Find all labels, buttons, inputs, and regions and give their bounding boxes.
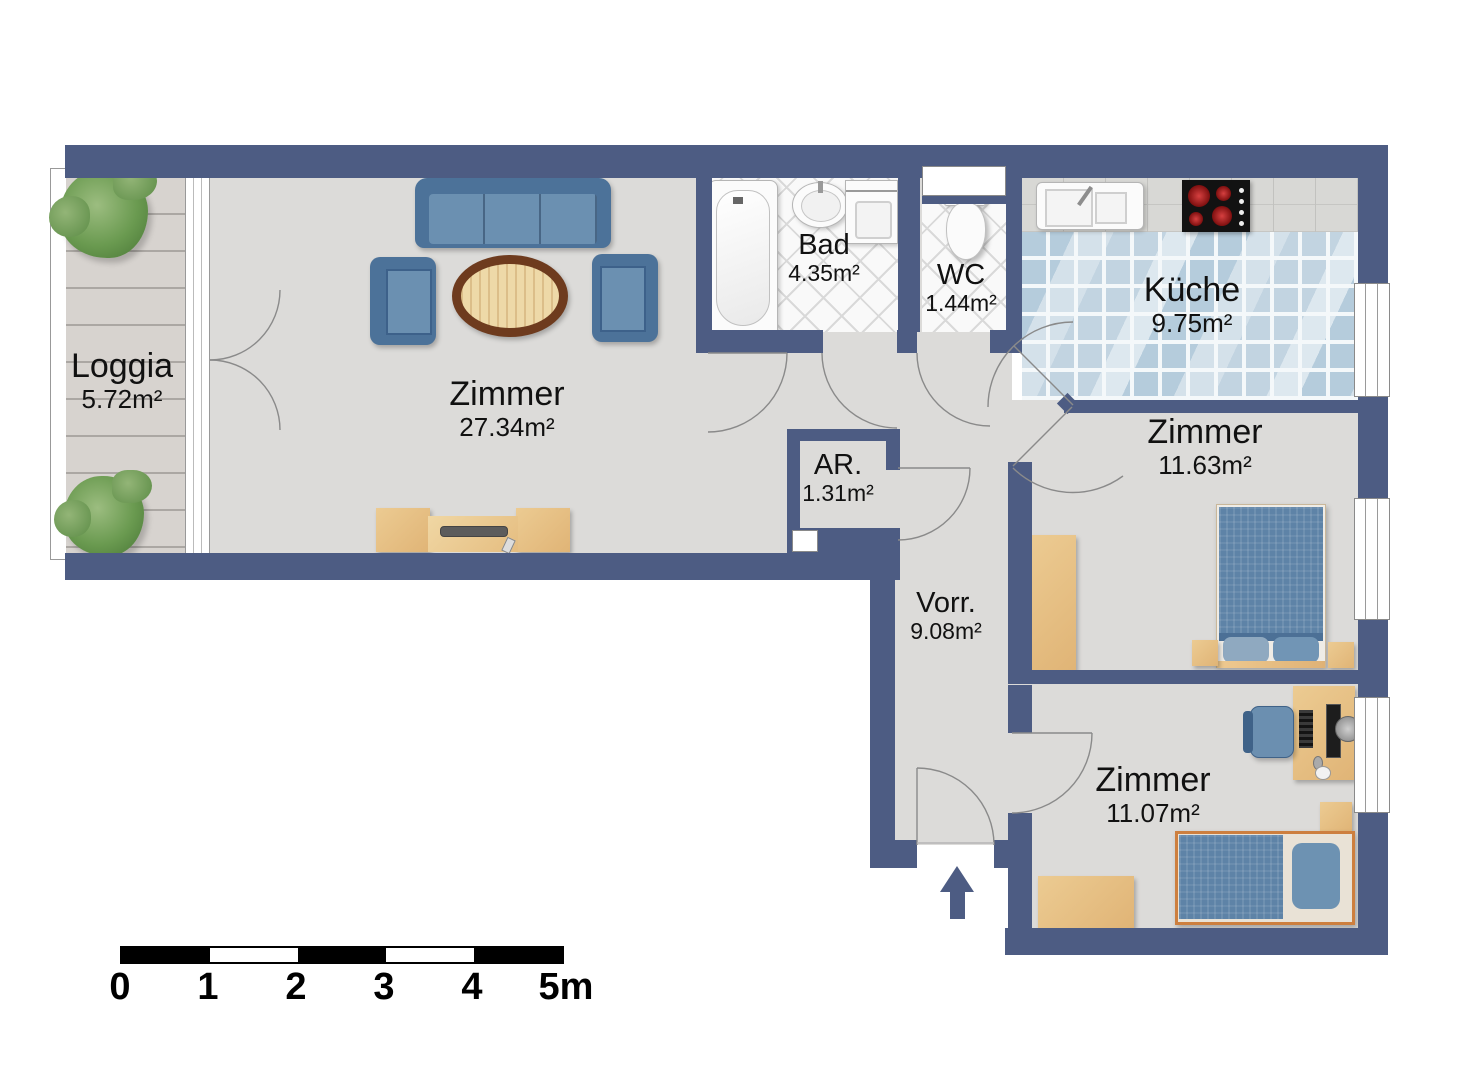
room-area: 9.08m² (910, 619, 982, 644)
room-name: AR. (802, 450, 874, 481)
scale-segment (210, 948, 298, 962)
scale-segment (122, 948, 210, 962)
scale-bar (120, 946, 564, 964)
door-swings (0, 0, 1475, 1080)
room-label-kitchen: Küche 9.75m² (1144, 272, 1240, 337)
room-label-hallway: Vorr. 9.08m² (910, 588, 982, 644)
room-label-loggia: Loggia 5.72m² (71, 348, 173, 413)
scale-segment (474, 948, 562, 962)
room-area: 11.63m² (1147, 451, 1262, 479)
room-area: 9.75m² (1144, 309, 1240, 337)
room-name: Bad (788, 230, 860, 261)
room-area: 27.34m² (449, 413, 564, 441)
scale-tick: 2 (285, 966, 306, 1009)
scale-segment (298, 948, 386, 962)
room-label-bedroom1: Zimmer 11.63m² (1147, 414, 1262, 479)
floor-plan: Loggia 5.72m² Zimmer 27.34m² Bad 4.35m² … (0, 0, 1475, 1080)
scale-tick: 0 (109, 966, 130, 1009)
room-name: Zimmer (1095, 762, 1210, 799)
scale-segment (386, 948, 474, 962)
scale-tick: 5m (539, 966, 594, 1009)
room-name: Zimmer (449, 376, 564, 413)
room-name: Küche (1144, 272, 1240, 309)
scale-tick: 4 (461, 966, 482, 1009)
room-label-bathroom: Bad 4.35m² (788, 230, 860, 286)
room-label-bedroom2: Zimmer 11.07m² (1095, 762, 1210, 827)
room-label-wc: WC 1.44m² (925, 260, 997, 316)
room-label-storage: AR. 1.31m² (802, 450, 874, 506)
room-area: 1.31m² (802, 481, 874, 506)
room-name: WC (925, 260, 997, 291)
room-label-living: Zimmer 27.34m² (449, 376, 564, 441)
room-name: Vorr. (910, 588, 982, 619)
room-area: 5.72m² (71, 385, 173, 413)
room-area: 11.07m² (1095, 799, 1210, 827)
room-name: Zimmer (1147, 414, 1262, 451)
room-area: 1.44m² (925, 291, 997, 316)
scale-tick: 1 (197, 966, 218, 1009)
scale-tick: 3 (373, 966, 394, 1009)
room-area: 4.35m² (788, 261, 860, 286)
room-name: Loggia (71, 348, 173, 385)
